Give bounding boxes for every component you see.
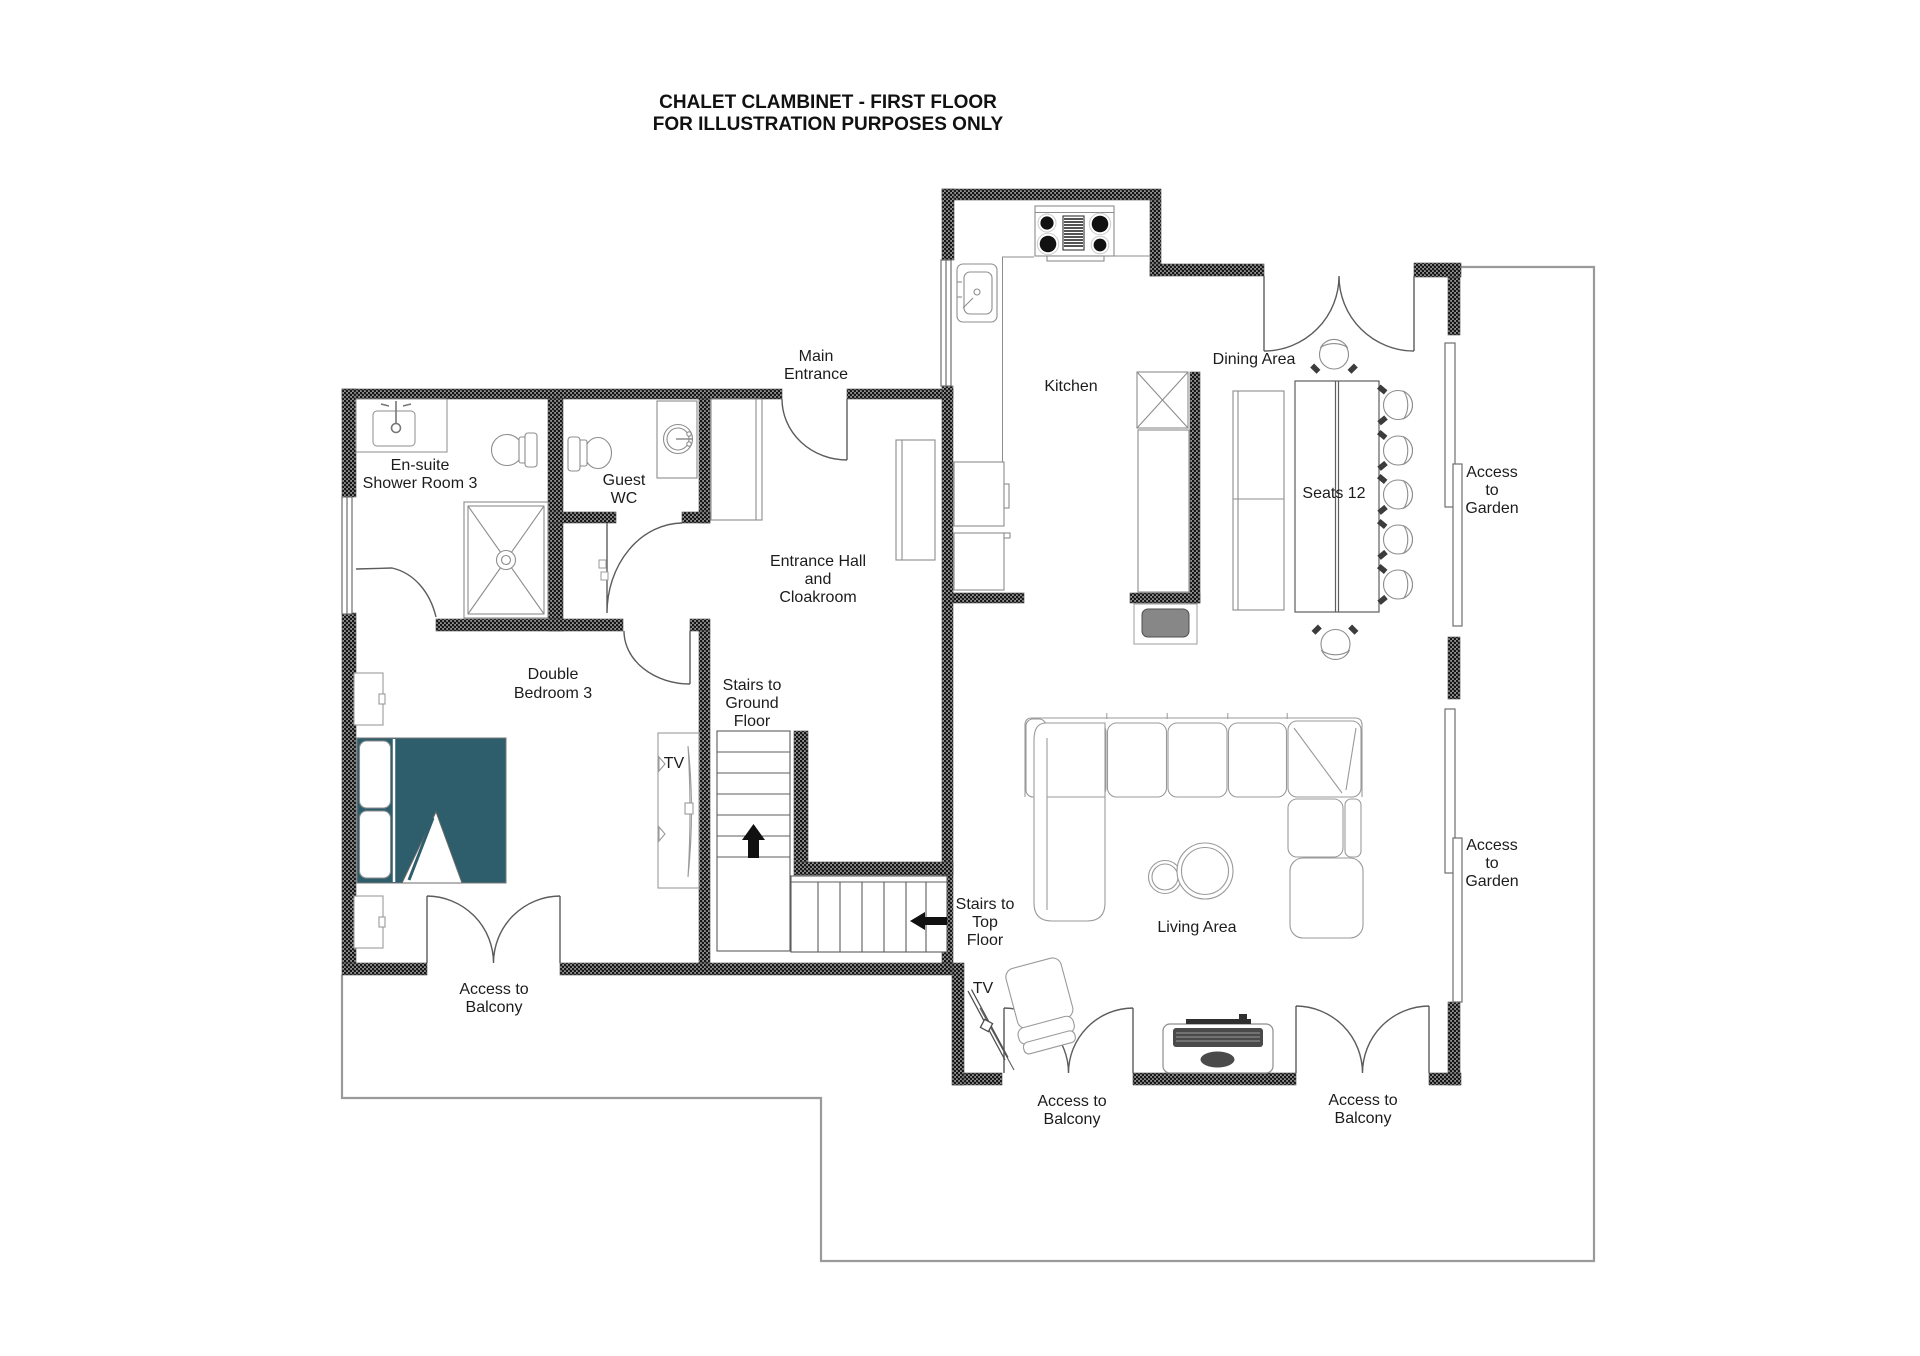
- svg-text:and: and: [805, 571, 832, 588]
- svg-text:Access to: Access to: [1328, 1092, 1397, 1109]
- svg-text:Stairs to: Stairs to: [723, 677, 782, 694]
- svg-text:Access: Access: [1466, 837, 1518, 854]
- svg-text:Stairs to: Stairs to: [956, 896, 1015, 913]
- svg-text:Entrance: Entrance: [784, 366, 848, 383]
- svg-text:Seats 12: Seats 12: [1302, 485, 1365, 502]
- svg-text:Garden: Garden: [1465, 500, 1518, 517]
- svg-text:Cloakroom: Cloakroom: [779, 589, 856, 606]
- svg-text:Balcony: Balcony: [1335, 1110, 1392, 1127]
- svg-text:Ground: Ground: [725, 695, 778, 712]
- svg-text:Top: Top: [972, 914, 998, 931]
- svg-text:Dining Area: Dining Area: [1213, 351, 1296, 368]
- svg-text:Floor: Floor: [967, 932, 1004, 949]
- svg-text:Entrance Hall: Entrance Hall: [770, 553, 866, 570]
- svg-text:TV: TV: [664, 755, 685, 772]
- svg-text:CHALET CLAMBINET - FIRST FLOOR: CHALET CLAMBINET - FIRST FLOOR: [659, 92, 997, 113]
- svg-text:En-suite: En-suite: [391, 457, 450, 474]
- svg-text:Kitchen: Kitchen: [1044, 378, 1097, 395]
- svg-text:to: to: [1485, 855, 1498, 872]
- svg-text:Guest: Guest: [603, 472, 646, 489]
- svg-text:Living Area: Living Area: [1157, 919, 1236, 936]
- svg-text:TV: TV: [973, 980, 994, 997]
- svg-text:Balcony: Balcony: [1044, 1111, 1101, 1128]
- svg-text:Access to: Access to: [459, 981, 528, 998]
- svg-text:Main: Main: [799, 348, 834, 365]
- svg-text:Balcony: Balcony: [466, 999, 523, 1016]
- svg-text:Bedroom 3: Bedroom 3: [514, 685, 592, 702]
- svg-text:Garden: Garden: [1465, 873, 1518, 890]
- svg-text:FOR ILLUSTRATION PURPOSES ONLY: FOR ILLUSTRATION PURPOSES ONLY: [653, 114, 1004, 135]
- svg-text:to: to: [1485, 482, 1498, 499]
- svg-text:Double: Double: [528, 666, 579, 683]
- svg-text:Access to: Access to: [1037, 1093, 1106, 1110]
- svg-text:Shower Room 3: Shower Room 3: [363, 475, 478, 492]
- svg-text:Access: Access: [1466, 464, 1518, 481]
- svg-text:WC: WC: [611, 490, 638, 507]
- svg-text:Floor: Floor: [734, 713, 771, 730]
